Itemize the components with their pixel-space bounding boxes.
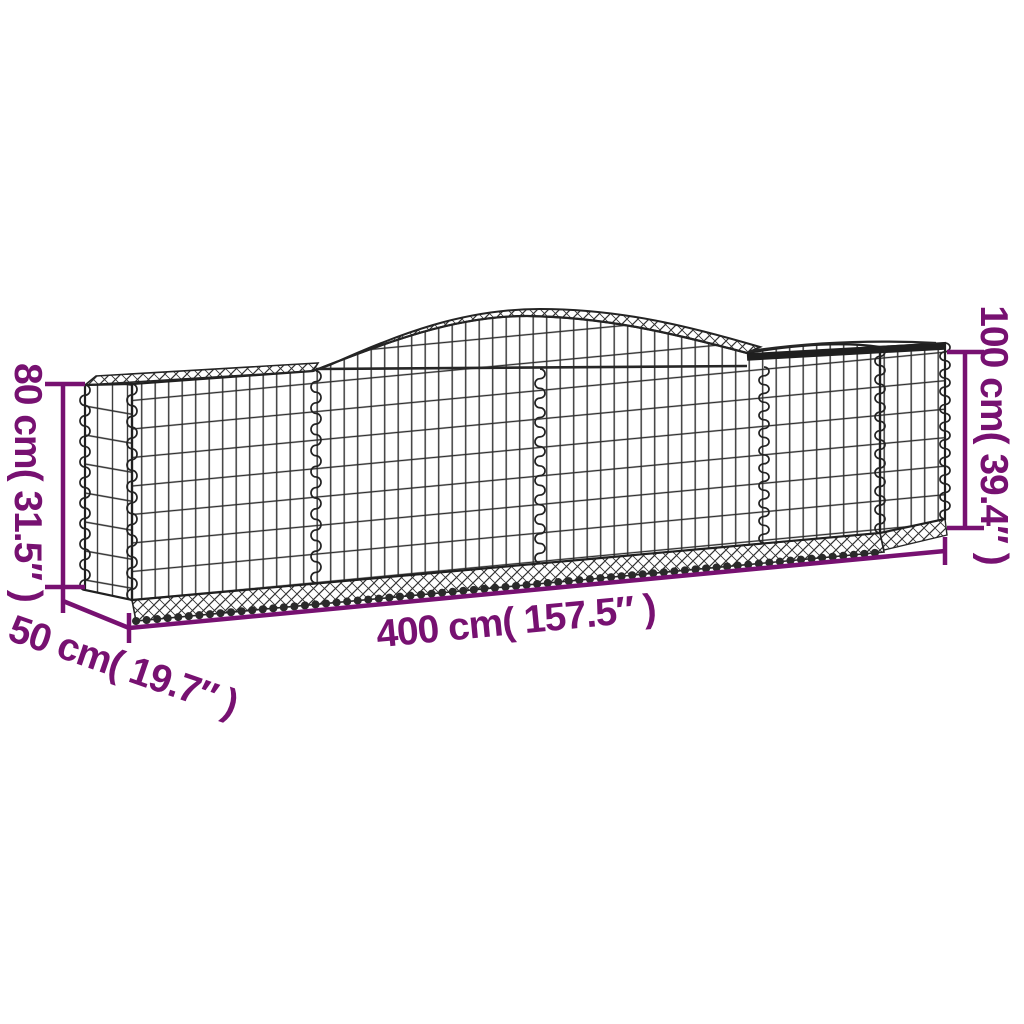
product-dimension-diagram: 80 cm( 31.5″ ) 100 cm( 39.4″ ) 400 cm( 1… [0,0,1024,1024]
gabion-basket-drawing [0,0,1024,1024]
height-left-dimension-label: 80 cm( 31.5″ ) [6,363,48,599]
height-right-dimension-label: 100 cm( 39.4″ ) [972,305,1014,565]
basket-left-end-panel [85,384,132,600]
height-left-dimension-line [45,384,85,613]
gabion-basket [80,309,950,621]
basket-right-end-panel [880,343,945,533]
